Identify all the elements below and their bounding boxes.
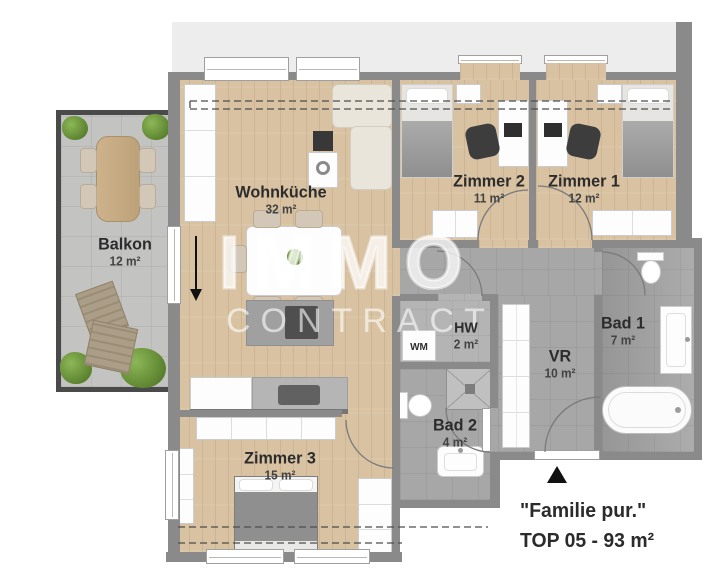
room-label-zimmer1: Zimmer 1 12 m² <box>548 171 620 206</box>
room-label-zimmer2: Zimmer 2 11 m² <box>453 171 525 206</box>
room-name: Wohnküche <box>235 182 326 202</box>
room-area: 12 m² <box>548 192 620 207</box>
room-label-vr: VR 10 m² <box>544 346 575 381</box>
watermark-line1: IMMO <box>219 226 476 300</box>
room-label-bad1: Bad 1 7 m² <box>601 313 645 348</box>
room-name: Zimmer 1 <box>548 171 620 191</box>
unit-tagline: "Familie pur." <box>520 496 654 526</box>
room-area: 10 m² <box>544 367 575 382</box>
room-area: 7 m² <box>601 334 645 349</box>
room-name: Bad 2 <box>433 415 477 435</box>
room-label-wohnkueche: Wohnküche 32 m² <box>235 182 326 217</box>
room-area: 12 m² <box>98 255 152 270</box>
room-name: Bad 1 <box>601 313 645 333</box>
room-area: 2 m² <box>454 338 478 353</box>
room-label-hw: HW 2 m² <box>454 320 478 353</box>
room-area: 32 m² <box>235 203 326 218</box>
room-name: VR <box>544 346 575 366</box>
entrance-marker-icon <box>547 466 567 483</box>
room-area: 11 m² <box>453 192 525 207</box>
balcony-arrow-icon <box>190 236 202 301</box>
room-label-zimmer3: Zimmer 3 15 m² <box>244 448 316 483</box>
floorplan: WM <box>0 0 722 576</box>
room-name: HW <box>454 320 478 338</box>
room-label-balkon: Balkon 12 m² <box>98 234 152 269</box>
room-area: 4 m² <box>433 436 477 451</box>
unit-number: TOP 05 - 93 m² <box>520 526 654 556</box>
room-label-bad2: Bad 2 4 m² <box>433 415 477 450</box>
room-name: Zimmer 2 <box>453 171 525 191</box>
room-name: Zimmer 3 <box>244 448 316 468</box>
unit-caption: "Familie pur." TOP 05 - 93 m² <box>520 496 654 556</box>
room-area: 15 m² <box>244 469 316 484</box>
room-name: Balkon <box>98 234 152 254</box>
